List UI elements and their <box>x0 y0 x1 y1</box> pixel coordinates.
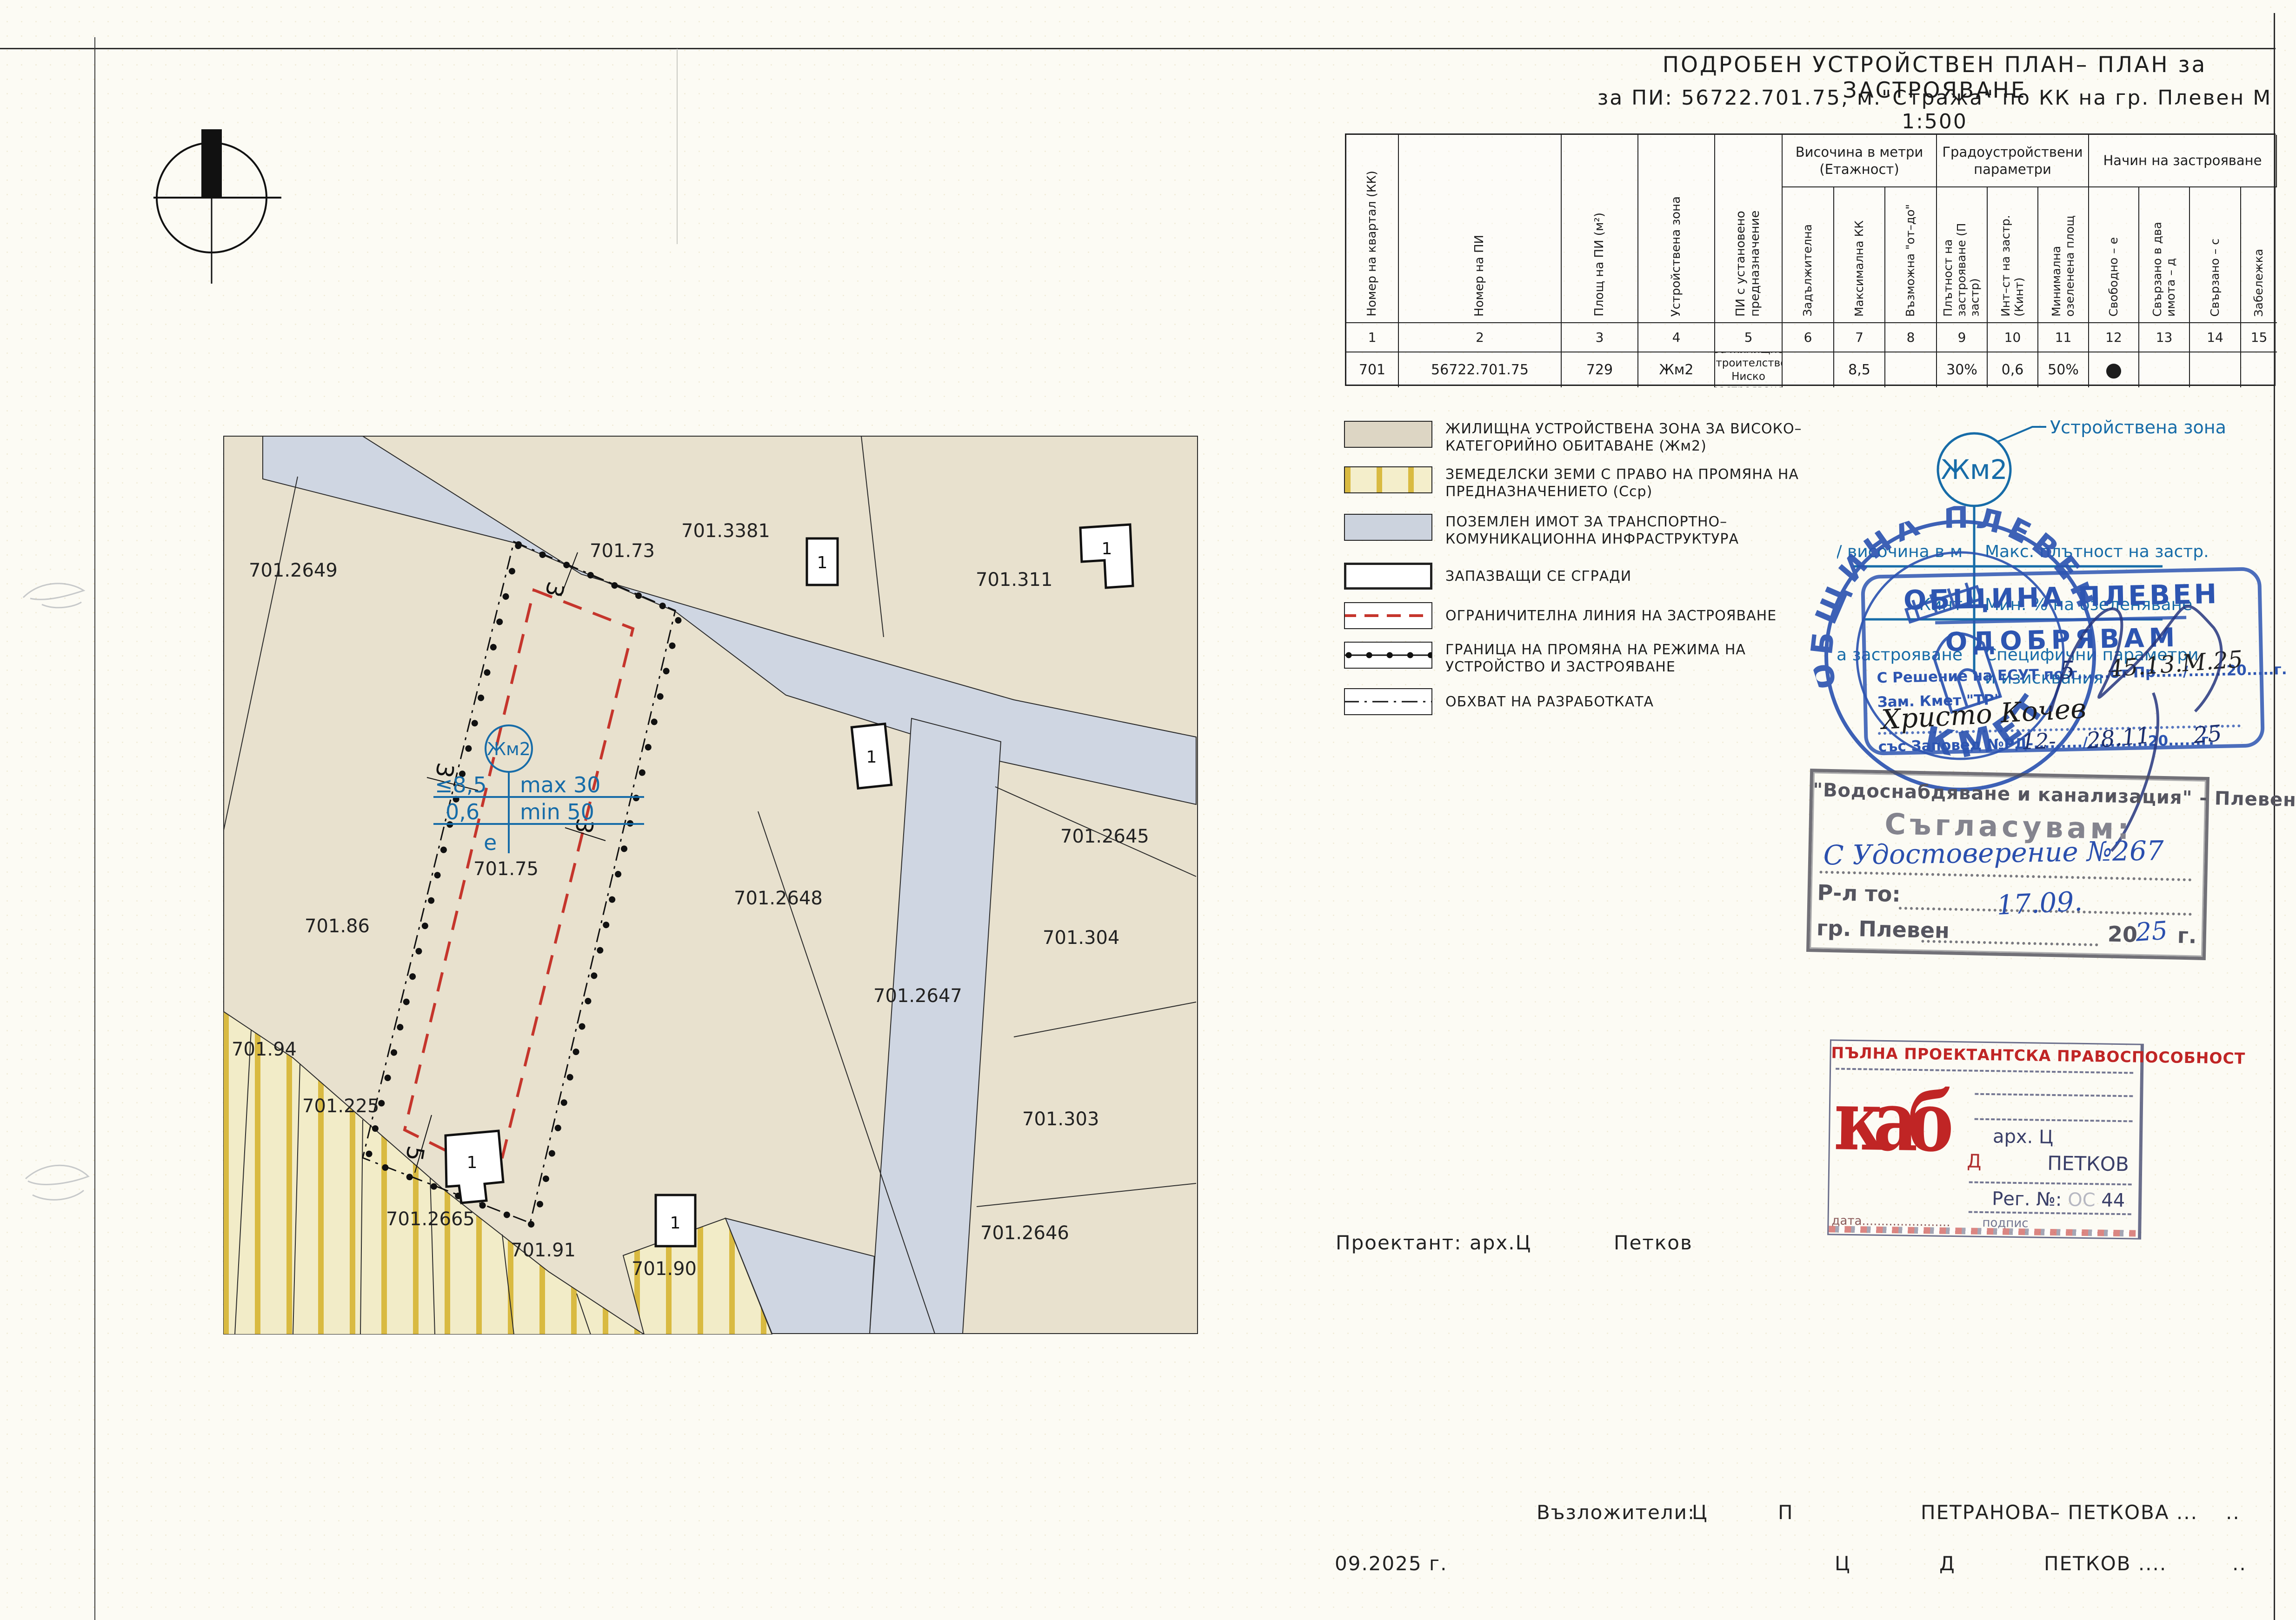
group-header-way-label: Начин на застрояване <box>2103 152 2262 169</box>
col-header-7: Максимална КК <box>1834 187 1885 322</box>
vik-year-suffix: г. <box>2177 923 2197 949</box>
col-header-6-label: Задължителна <box>1801 224 1815 317</box>
col-number: 10 <box>1988 322 2038 352</box>
scan-smudge-bottom <box>14 1144 102 1223</box>
client2-initial1: Ц <box>1835 1552 1851 1575</box>
col-number: 6 <box>1783 322 1834 352</box>
legend-item-transport: ПОЗЕМЛЕН ИМОТ ЗА ТРАНСПОРТНО– КОМУНИКАЦИ… <box>1344 514 1827 548</box>
client2-dots: .. <box>2232 1552 2247 1575</box>
designer-name: Петков <box>1614 1231 1693 1254</box>
cadastral-map: 1 1 1 1 1 3 3 3 5 Жм2 <box>223 432 1200 1335</box>
vik-hand-certificate: С Удостоверение №267 <box>1823 835 2164 871</box>
col-header-3-label: Площ на ПИ (м²) <box>1592 212 1607 317</box>
legend-label: ГРАНИЦА НА ПРОМЯНА НА РЕЖИМА НА УСТРОЙСТ… <box>1445 642 1845 676</box>
col-header-8-label: Възможна "от–до" <box>1904 204 1917 317</box>
kab-dash-4 <box>1969 1182 2132 1186</box>
client1-dots: .. <box>2226 1501 2240 1524</box>
subject-kint: 0,6 <box>446 799 479 824</box>
value-col14 <box>2190 352 2241 387</box>
parcel-label-94: 701.94 <box>232 1039 297 1060</box>
value-col15 <box>2241 352 2277 387</box>
col-number: 3 <box>1562 322 1638 352</box>
legend-item-agricultural: ЗЕМЕДЕЛСКИ ЗЕМИ С ПРАВО НА ПРОМЯНА НА ПР… <box>1344 466 1855 500</box>
parcel-label-303: 701.303 <box>1022 1109 1099 1130</box>
col-header-13-label: Свързано в два имота – д <box>2151 189 2178 317</box>
value-green-text: 50% <box>2048 362 2079 378</box>
building-label: 1 <box>817 553 828 572</box>
col-number: 11 <box>2038 322 2089 352</box>
parcel-label-311: 701.311 <box>976 569 1052 591</box>
building-label: 1 <box>467 1153 478 1172</box>
kab-reg-row: Рег. №: ОС 44 <box>1992 1188 2125 1211</box>
value-zone: Жм2 <box>1638 352 1715 387</box>
fold-crease <box>677 49 678 244</box>
legend-item-regime-border: ГРАНИЦА НА ПРОМЯНА НА РЕЖИМА НА УСТРОЙСТ… <box>1344 642 1845 676</box>
col-header-7-label: Максимална КК <box>1853 220 1866 317</box>
project-date: 09.2025 г. <box>1335 1552 1447 1575</box>
col-header-8: Възможна "от–до" <box>1885 187 1937 322</box>
vik-org: "Водоснабдяване и канализация" - Плевен <box>1813 779 2206 809</box>
col-number-label: 9 <box>1958 330 1966 345</box>
parcel-label-2646: 701.2646 <box>980 1222 1069 1244</box>
col-number-label: 7 <box>1855 330 1863 345</box>
building-label: 1 <box>866 748 877 767</box>
zone-key-pointer-label: Устройствена зона <box>2050 417 2226 438</box>
col-number-label: 2 <box>1476 330 1484 345</box>
legend: ЖИЛИЩНА УСТРОЙСТВЕНА ЗОНА ЗА ВИСОКО– КАТ… <box>1344 421 1856 723</box>
legend-item-buildings: ЗАПАЗВАЩИ СЕ СГРАДИ <box>1344 563 1631 590</box>
value-kvartal: 701 <box>1346 352 1399 387</box>
legend-label: ПОЗЕМЛЕН ИМОТ ЗА ТРАНСПОРТНО– КОМУНИКАЦИ… <box>1445 514 1827 548</box>
value-pi-number-text: 56722.701.75 <box>1431 362 1529 378</box>
vik-dotted-line1 <box>1820 871 2192 882</box>
north-arrow-icon <box>153 116 288 293</box>
kab-logo: каб <box>1833 1071 1944 1170</box>
transport-swatch <box>1344 514 1432 541</box>
col-number-label: 14 <box>2207 330 2223 345</box>
col-header-12: Свободно – е <box>2089 187 2139 322</box>
legend-label: ЖИЛИЩНА УСТРОЙСТВЕНА ЗОНА ЗА ВИСОКО– КАТ… <box>1445 421 1827 455</box>
plan-title-line2: за ПИ: 56722.701.75, м."Стража" по КК на… <box>1595 86 2274 133</box>
sheet-left-fold-edge <box>94 37 95 1620</box>
value-purpose-line2: Ниско застрояване <box>1715 371 1783 388</box>
legend-item-residential: ЖИЛИЩНА УСТРОЙСТВЕНА ЗОНА ЗА ВИСОКО– КАТ… <box>1344 421 1827 455</box>
parcel-label-75: 701.75 <box>473 858 539 880</box>
col-number: 9 <box>1937 322 1988 352</box>
group-header-params-label: Градоустройствени параметри <box>1937 144 2088 178</box>
value-area-text: 729 <box>1586 362 1613 378</box>
col-header-6: Задължителна <box>1783 187 1834 322</box>
col-number-label: 11 <box>2055 330 2072 345</box>
value-purpose: За жилищно строителствоНиско застрояване <box>1715 352 1783 387</box>
col-number: 2 <box>1399 322 1562 352</box>
legend-label: ЗЕМЕДЕЛСКИ ЗЕМИ С ПРАВО НА ПРОМЯНА НА ПР… <box>1445 466 1855 500</box>
value-area: 729 <box>1562 352 1638 387</box>
col-header-2-label: Номер на ПИ <box>1472 235 1487 317</box>
regime-border-swatch <box>1344 642 1432 669</box>
col-number-label: 13 <box>2156 330 2173 345</box>
col-header-5: ПИ с установено предназначение <box>1715 135 1783 322</box>
value-max-height-text: 8,5 <box>1848 362 1870 378</box>
parcel-label-225: 701.225 <box>302 1095 379 1117</box>
col-header-15: Забележка <box>2241 187 2277 322</box>
kab-dash-3 <box>1975 1118 2133 1122</box>
kab-stamp: ПЪЛНА ПРОЕКТАНТСКА ПРАВОСПОСОБНОСТ каб а… <box>1827 1039 2144 1239</box>
col-number-label: 5 <box>1744 330 1753 345</box>
col-number: 14 <box>2190 322 2241 352</box>
clients-label: Възложители: <box>1537 1501 1695 1524</box>
parcel-label-90: 701.90 <box>632 1258 697 1280</box>
client1-initial2: П <box>1778 1501 1794 1524</box>
client1-initial1: Ц <box>1692 1501 1708 1524</box>
zone-key-zone: Жм2 <box>1941 454 2007 485</box>
parcel-label-2649: 701.2649 <box>249 560 338 581</box>
col-number: 8 <box>1885 322 1937 352</box>
kab-architect: арх. Ц <box>1993 1126 2054 1148</box>
scan-smudge-top <box>14 570 98 644</box>
col-number: 15 <box>2241 322 2277 352</box>
restriction-line-swatch <box>1344 602 1432 629</box>
col-number: 1 <box>1346 322 1399 352</box>
col-header-9: Плътност на застрояване (П застр) <box>1937 187 1988 322</box>
kab-initial: Д <box>1967 1150 1982 1172</box>
col-header-10: Инт–ст на застр. (Кинт) <box>1988 187 2038 322</box>
parcel-label-2665: 701.2665 <box>386 1208 475 1230</box>
col-number-label: 12 <box>2105 330 2122 345</box>
col-number-label: 8 <box>1907 330 1915 345</box>
col-header-5-label: ПИ с установено предназначение <box>1734 138 1763 317</box>
parcel-label-73: 701.73 <box>590 540 655 562</box>
col-number-label: 3 <box>1596 330 1604 345</box>
col-number: 7 <box>1834 322 1885 352</box>
col-header-14: Свързано – с <box>2190 187 2241 322</box>
group-header-params: Градоустройствени параметри <box>1937 135 2089 187</box>
client2-initial2: Д <box>1939 1552 1956 1575</box>
legend-item-scope: ОБХВАТ НА РАЗРАБОТКАТА <box>1344 688 1654 715</box>
col-number: 13 <box>2139 322 2190 352</box>
col-number-label: 6 <box>1804 330 1812 345</box>
agricultural-swatch <box>1344 466 1432 493</box>
col-header-1: Номер на квартал (КК) <box>1346 135 1399 322</box>
col-number-label: 15 <box>2251 330 2268 345</box>
col-header-15-label: Забележка <box>2252 249 2266 317</box>
group-header-way: Начин на застрояване <box>2089 135 2277 187</box>
value-col13 <box>2139 352 2190 387</box>
col-header-9-label: Плътност на застрояване (П застр) <box>1942 189 1982 317</box>
kab-header: ПЪЛНА ПРОЕКТАНТСКА ПРАВОСПОСОБНОСТ <box>1831 1043 2140 1066</box>
client1-name: ПЕТРАНОВА– ПЕТКОВА ... <box>1921 1501 2198 1524</box>
residential-zone-swatch <box>1344 421 1432 448</box>
parcel-label-2645: 701.2645 <box>1060 826 1149 847</box>
sheet-top-edge <box>0 48 2276 49</box>
col-header-3: Площ на ПИ (м²) <box>1562 135 1638 322</box>
col-header-12-label: Свободно – е <box>2107 237 2121 317</box>
subject-height: ≤8,5 <box>435 772 487 797</box>
kab-reg-number: 44 <box>2101 1189 2125 1211</box>
designer-label: Проектант: <box>1336 1231 1462 1254</box>
client2-name: ПЕТКОВ .... <box>2044 1552 2167 1575</box>
value-density: 30% <box>1937 352 1988 387</box>
legend-item-restriction-line: ОГРАНИЧИТЕЛНА ЛИНИЯ НА ЗАСТРОЯВАНЕ <box>1344 602 1777 629</box>
vik-dotted-line3 <box>1921 940 2098 946</box>
legend-label: ОБХВАТ НА РАЗРАБОТКАТА <box>1445 694 1654 711</box>
col-number: 4 <box>1638 322 1715 352</box>
subject-density: max 30 <box>520 772 600 797</box>
building-label: 1 <box>1102 539 1112 558</box>
value-kvartal-text: 701 <box>1359 362 1385 378</box>
kab-dash-5 <box>1969 1211 2131 1215</box>
parcel-label-304: 701.304 <box>1043 927 1119 949</box>
col-header-11-label: Минимална озеленена площ <box>2050 189 2077 317</box>
col-header-13: Свързано в два имота – д <box>2139 187 2190 322</box>
col-number: 5 <box>1715 322 1783 352</box>
col-header-4-label: Устройствена зона <box>1669 196 1684 317</box>
parcel-label-2648: 701.2648 <box>734 888 823 909</box>
value-max-height: 8,5 <box>1834 352 1885 387</box>
value-density-text: 30% <box>1946 362 1977 378</box>
group-header-height: Височина в метри (Етажност) <box>1783 135 1937 187</box>
legend-label: ЗАПАЗВАЩИ СЕ СГРАДИ <box>1445 568 1631 585</box>
col-header-1-label: Номер на квартал (КК) <box>1365 171 1379 317</box>
parcel-label-91: 701.91 <box>511 1240 576 1261</box>
kab-name: ПЕТКОВ <box>2047 1152 2129 1175</box>
kab-dash-2 <box>1975 1093 2133 1097</box>
vik-year-prefix: 20 <box>2107 922 2137 947</box>
value-purpose-line1: За жилищно строителство <box>1715 352 1783 369</box>
group-header-height-label: Височина в метри (Етажност) <box>1783 144 1936 178</box>
col-number-label: 10 <box>2004 330 2021 345</box>
parcel-label-2647: 701.2647 <box>873 985 962 1007</box>
subject-green: min 50 <box>520 799 594 824</box>
value-green: 50% <box>2038 352 2089 387</box>
kab-reg-label: Рег. №: <box>1992 1188 2062 1210</box>
vik-hand-date: 17.09. <box>1996 885 2083 921</box>
value-free-dot-glyph: ● <box>2105 358 2123 381</box>
designer-title: арх.Ц <box>1470 1231 1531 1254</box>
building-label: 1 <box>670 1214 681 1233</box>
value-zone-text: Жм2 <box>1659 362 1693 378</box>
legend-label: ОГРАНИЧИТЕЛНА ЛИНИЯ НА ЗАСТРОЯВАНЕ <box>1445 608 1777 625</box>
vik-stamp: "Водоснабдяване и канализация" - Плевен … <box>1806 769 2209 960</box>
value-col6 <box>1783 352 1834 387</box>
subject-zone-code: Жм2 <box>487 739 531 759</box>
parcel-label-3381: 701.3381 <box>681 520 770 542</box>
col-number-label: 1 <box>1368 330 1377 345</box>
value-free-dot: ● <box>2089 352 2139 387</box>
col-number-label: 4 <box>1672 330 1681 345</box>
development-parameters-table: Номер на квартал (КК) Номер на ПИ Площ н… <box>1345 133 2276 386</box>
col-header-10-label: Инт–ст на застр. (Кинт) <box>1999 189 2026 317</box>
value-kint: 0,6 <box>1988 352 2038 387</box>
value-col8 <box>1885 352 1937 387</box>
col-header-2: Номер на ПИ <box>1399 135 1562 322</box>
parcel-label-86: 701.86 <box>305 916 370 937</box>
value-kint-text: 0,6 <box>2002 362 2024 378</box>
vik-city: гр. Плевен <box>1816 915 1950 943</box>
col-number: 12 <box>2089 322 2139 352</box>
col-header-11: Минимална озеленена площ <box>2038 187 2089 322</box>
scanned-plan-sheet: ПОДРОБЕН УСТРОЙСТВЕН ПЛАН– ПЛАН за ЗАСТР… <box>0 0 2296 1620</box>
value-pi-number: 56722.701.75 <box>1399 352 1562 387</box>
vik-line1: Р-л то: <box>1817 880 1901 907</box>
scope-line-swatch <box>1344 688 1432 715</box>
vik-hand-year: 25 <box>2135 916 2169 947</box>
col-header-4: Устройствена зона <box>1638 135 1715 322</box>
subject-way: е <box>484 830 497 855</box>
col-header-14-label: Свързано – с <box>2209 239 2222 317</box>
kept-buildings-swatch <box>1344 563 1432 590</box>
